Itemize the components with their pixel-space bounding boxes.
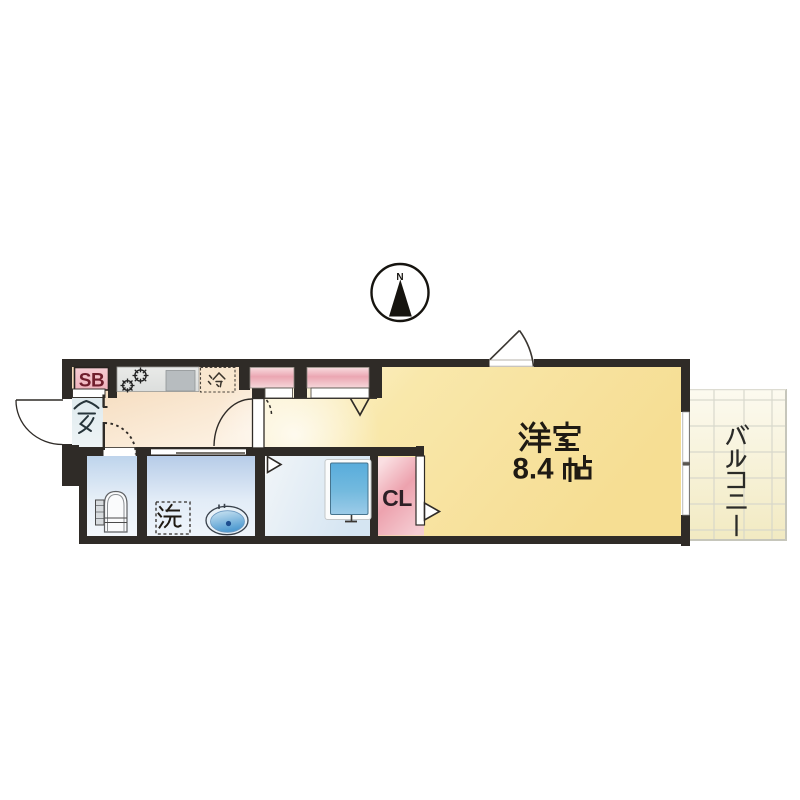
svg-text:8.4: 8.4 <box>512 453 554 486</box>
svg-text:N: N <box>396 272 403 283</box>
svg-text:CL: CL <box>382 485 412 511</box>
svg-text:SB: SB <box>79 371 104 392</box>
